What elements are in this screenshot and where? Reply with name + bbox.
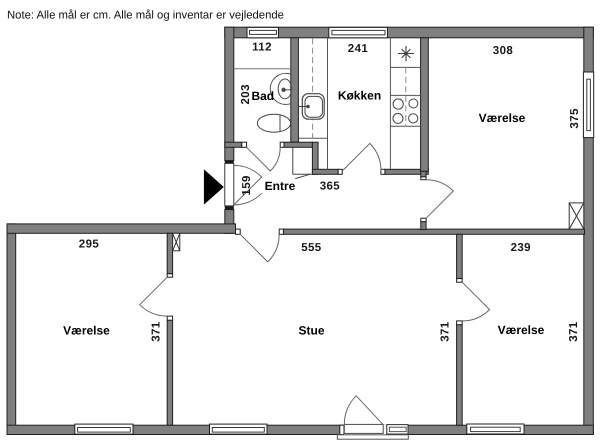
svg-text:Værelse: Værelse: [63, 324, 110, 338]
svg-text:555: 555: [301, 242, 322, 254]
svg-text:365: 365: [320, 180, 341, 192]
svg-text:Entre: Entre: [265, 179, 296, 193]
svg-text:371: 371: [440, 321, 452, 342]
svg-text:295: 295: [79, 239, 100, 251]
svg-text:Værelse: Værelse: [479, 111, 526, 125]
svg-text:371: 371: [568, 321, 580, 342]
svg-text:112: 112: [252, 42, 272, 54]
svg-text:239: 239: [511, 242, 531, 254]
svg-text:Køkken: Køkken: [338, 89, 381, 103]
svg-text:371: 371: [151, 321, 163, 342]
svg-text:Værelse: Værelse: [498, 323, 545, 337]
svg-text:159: 159: [241, 175, 253, 195]
svg-text:203: 203: [240, 84, 252, 104]
svg-text:241: 241: [348, 43, 369, 55]
svg-text:Bad: Bad: [251, 89, 274, 103]
svg-text:Stue: Stue: [298, 324, 324, 338]
svg-text:Note: Alle mål er cm. Alle mål: Note: Alle mål er cm. Alle mål og invent…: [7, 9, 284, 22]
svg-text:308: 308: [493, 45, 514, 57]
svg-text:375: 375: [569, 108, 581, 129]
